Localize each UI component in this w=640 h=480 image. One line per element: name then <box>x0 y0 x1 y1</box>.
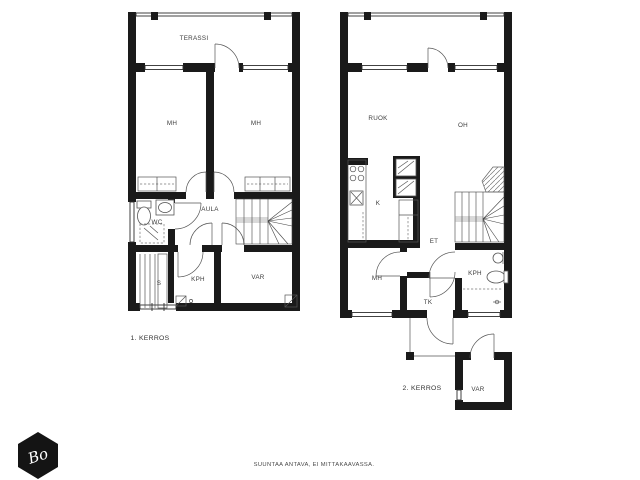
walls-1f <box>128 12 300 311</box>
room-label-kph-1f: KPH <box>191 276 205 283</box>
porch-outline <box>406 318 455 360</box>
room-label-k: K <box>376 200 381 207</box>
bathroom-sink-icon-2f <box>493 252 503 264</box>
logo: Bo <box>18 432 58 479</box>
room-label-mh-right-1f: MH <box>251 120 261 127</box>
stair-void-hatch <box>482 167 504 192</box>
floor-label-2: 2. KERROS <box>403 385 442 392</box>
stove-icon <box>350 166 364 181</box>
room-label-kph-2f: KPH <box>468 270 482 277</box>
floor-plan-1: TERASSI MH MH WC AULA KPH S VAR 1. KERRO… <box>128 12 300 342</box>
storage-room-var <box>455 334 512 410</box>
room-label-mh-2f: MH <box>372 275 382 282</box>
disclaimer-text: SUUNTAA ANTAVA, EI MITTAKAAVASSA. <box>254 462 375 468</box>
stairs-1f-icon <box>236 199 292 244</box>
shower-icon <box>140 224 164 243</box>
sauna-benches-icon <box>140 254 167 308</box>
floor-plan-page: TERASSI MH MH WC AULA KPH S VAR 1. KERRO… <box>0 0 640 480</box>
room-label-wc: WC <box>152 219 163 226</box>
wardrobe-icon-left <box>138 177 176 191</box>
floor-plan-2: RUOK OH K ET MH TK KPH VAR 2. KERROS <box>340 12 512 410</box>
room-label-var-2f: VAR <box>471 386 484 393</box>
room-label-sauna: S <box>157 280 161 287</box>
room-label-aula: AULA <box>201 206 219 213</box>
room-label-ruok: RUOK <box>368 115 388 122</box>
floor-drain-icon-2f <box>493 300 501 304</box>
room-label-oh: OH <box>458 122 468 129</box>
sink-icon <box>156 200 174 215</box>
stairs-2f-icon <box>455 192 504 242</box>
terrace-railing <box>136 12 292 20</box>
room-label-tk: TK <box>424 299 433 306</box>
room-label-var-1f: VAR <box>251 274 264 281</box>
room-label-mh-left-1f: MH <box>167 120 177 127</box>
balcony-railing <box>348 12 504 20</box>
room-label-terassi: TERASSI <box>180 35 209 42</box>
floor-plan-drawing: TERASSI MH MH WC AULA KPH S VAR 1. KERRO… <box>0 0 640 480</box>
floor-label-1: 1. KERROS <box>131 335 170 342</box>
room-label-et: ET <box>430 238 439 245</box>
toilet-icon <box>137 201 151 225</box>
kitchen-sink-icon <box>350 191 363 205</box>
wardrobe-icon-right <box>245 177 290 191</box>
